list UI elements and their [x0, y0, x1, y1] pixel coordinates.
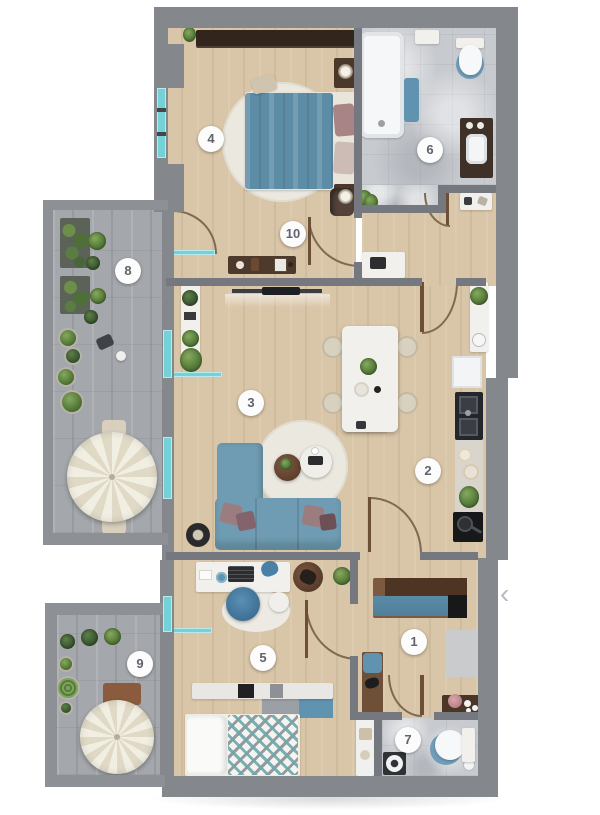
door-leaf — [305, 600, 308, 658]
decor-dot-icon — [288, 262, 293, 267]
plant-icon — [90, 288, 106, 304]
wardrobe — [196, 30, 356, 48]
entry-bench-box — [448, 595, 467, 618]
door-leaf — [368, 497, 371, 552]
soap-icon — [466, 122, 473, 129]
wall — [438, 185, 496, 193]
plant-icon — [60, 634, 75, 649]
plant-icon — [182, 290, 198, 306]
wall — [350, 560, 358, 604]
terrace-door-glass — [163, 330, 172, 378]
plant-icon — [182, 330, 199, 347]
wall — [354, 28, 362, 185]
desk-chair-blue — [226, 587, 260, 621]
single-bed-pillow — [187, 716, 227, 774]
wall-pillar — [154, 44, 184, 88]
terrace-wall-left — [43, 200, 53, 545]
bath-mat — [404, 78, 419, 122]
bed-pillow — [333, 103, 357, 137]
room-marker-2: 2 — [415, 458, 441, 484]
kettle-icon — [473, 334, 485, 346]
plant-icon — [183, 27, 196, 42]
faucet-icon — [465, 410, 471, 416]
shelf-block-icon — [238, 684, 254, 698]
herbs-icon — [459, 486, 479, 508]
fridge — [452, 356, 482, 388]
room-marker-9: 9 — [127, 651, 153, 677]
room-marker-3: 3 — [238, 390, 264, 416]
potted-plant-icon — [58, 369, 74, 385]
potted-plant-icon — [61, 703, 71, 713]
toilet — [459, 45, 482, 75]
planter-box — [60, 276, 90, 314]
toilet-tank — [462, 728, 475, 762]
vanity-sink — [466, 134, 487, 164]
door-leaf — [308, 217, 311, 265]
coffee-table-plant-icon — [280, 458, 292, 470]
potted-plant-icon — [60, 658, 72, 670]
entry-bench-cushion — [373, 596, 448, 616]
wall — [420, 552, 478, 560]
bowl-icon — [458, 448, 472, 462]
photo-frame-icon — [274, 258, 287, 272]
outer-wall-left-lower — [160, 560, 174, 776]
window — [157, 88, 166, 158]
room-marker-1: 1 — [401, 629, 427, 655]
plant-icon — [81, 629, 98, 646]
floor-plan: 1 2 3 4 5 6 7 8 9 10 ‹ — [0, 0, 600, 815]
shelf-item-icon — [464, 197, 472, 205]
outer-wall-right-kitchen — [486, 378, 508, 560]
laptop-icon — [370, 257, 386, 269]
dining-table — [342, 326, 398, 432]
potted-plant-icon — [62, 392, 82, 412]
room-marker-4: 4 — [198, 126, 224, 152]
console-item-icon — [356, 421, 366, 429]
wall — [374, 718, 382, 776]
dining-chair — [322, 392, 344, 414]
entrance-door-leaf — [420, 675, 424, 715]
decor-bottle-icon — [251, 258, 259, 271]
bed-pillow — [333, 141, 356, 174]
dining-chair — [396, 392, 418, 414]
bathroom-shelf — [415, 30, 439, 44]
succulent-pot-icon — [58, 678, 78, 698]
sofa-pillow — [235, 510, 256, 531]
outer-wall-right-upper — [496, 28, 518, 378]
dining-chair — [396, 336, 418, 358]
toilet — [435, 730, 465, 760]
table-lamp-icon — [338, 64, 353, 79]
books-icon — [184, 312, 196, 320]
room-marker-5: 5 — [250, 645, 276, 671]
room-marker-8: 8 — [115, 258, 141, 284]
outer-wall-top — [158, 7, 518, 28]
outer-wall-left-mid — [162, 212, 174, 560]
decor-dot-icon — [464, 700, 471, 707]
potted-plant-icon — [66, 349, 80, 363]
kitchen-plant-icon — [470, 287, 488, 305]
room-marker-10: 10 — [280, 221, 306, 247]
monitor-icon — [228, 566, 254, 582]
balcony-wall-top — [45, 603, 165, 615]
potted-plant-icon — [60, 330, 76, 346]
cup-icon — [312, 448, 318, 454]
window-mullion — [157, 108, 166, 112]
patio-umbrella — [80, 700, 154, 774]
table-plate-icon — [354, 382, 369, 397]
wall — [350, 656, 358, 716]
window-mullion — [157, 132, 166, 136]
decor-bowl-icon — [236, 261, 244, 269]
sink-basin — [459, 418, 478, 436]
tray-icon — [308, 456, 323, 465]
wall — [438, 185, 446, 213]
wall — [354, 205, 444, 213]
balcony-wall-bottom — [45, 775, 165, 787]
tv-light-glow — [225, 294, 330, 308]
terrace-window — [163, 437, 172, 499]
balcony-wall-left — [45, 603, 57, 787]
soap-icon — [477, 122, 484, 129]
single-bed-blanket — [228, 715, 298, 775]
tall-cabinet — [356, 718, 374, 776]
wall — [354, 185, 362, 218]
door-leaf — [173, 250, 215, 255]
side-table-black — [186, 523, 210, 547]
flowers-icon — [448, 694, 462, 708]
ball-icon — [116, 351, 126, 361]
plant-icon — [88, 232, 106, 250]
dining-chair — [322, 336, 344, 358]
slider-leaf — [172, 628, 212, 633]
bench-pillow-blue — [363, 653, 382, 673]
outer-wall-right-lower — [478, 558, 498, 795]
chevron-left-icon[interactable]: ‹ — [500, 580, 509, 608]
door-leaf — [446, 193, 449, 225]
tv-screen — [262, 287, 300, 295]
table-plant-icon — [360, 358, 377, 375]
terrace-wall-bottom — [43, 533, 168, 545]
table-bottle-icon — [374, 386, 381, 393]
entry-bench-top — [385, 578, 467, 596]
room-marker-7: 7 — [395, 727, 421, 753]
wall — [456, 278, 486, 286]
terrace-wall-top — [43, 200, 168, 210]
patio-umbrella — [67, 432, 157, 522]
double-bed-blanket — [245, 93, 333, 189]
slider-leaf — [172, 372, 222, 377]
outer-wall-bottom — [162, 776, 498, 797]
cup-icon — [216, 572, 227, 583]
sofa-chaise — [217, 443, 263, 503]
plant-icon — [104, 628, 121, 645]
washer-drum-icon — [386, 755, 403, 772]
plant-icon — [333, 567, 351, 585]
bowl-icon — [463, 464, 479, 480]
side-table — [269, 592, 289, 612]
shelf-strip — [192, 683, 333, 699]
sofa-pillow — [319, 513, 337, 531]
plant-icon — [84, 310, 98, 324]
cabinet-decor-icon — [360, 750, 370, 760]
pan-icon — [457, 516, 473, 532]
wall — [434, 712, 478, 720]
plant-icon — [86, 256, 100, 270]
paper-icon — [200, 571, 211, 579]
shelf-block-icon — [270, 684, 283, 698]
balcony-door-glass — [163, 596, 172, 632]
table-lamp-icon — [338, 189, 353, 204]
wall — [166, 552, 360, 560]
bathtub-drain-icon — [378, 120, 385, 127]
plant-icon — [180, 348, 202, 372]
entry-mat — [445, 630, 477, 677]
room-marker-6: 6 — [417, 137, 443, 163]
wall — [166, 278, 422, 286]
door-leaf — [420, 282, 424, 332]
cabinet-decor-icon — [359, 728, 372, 740]
